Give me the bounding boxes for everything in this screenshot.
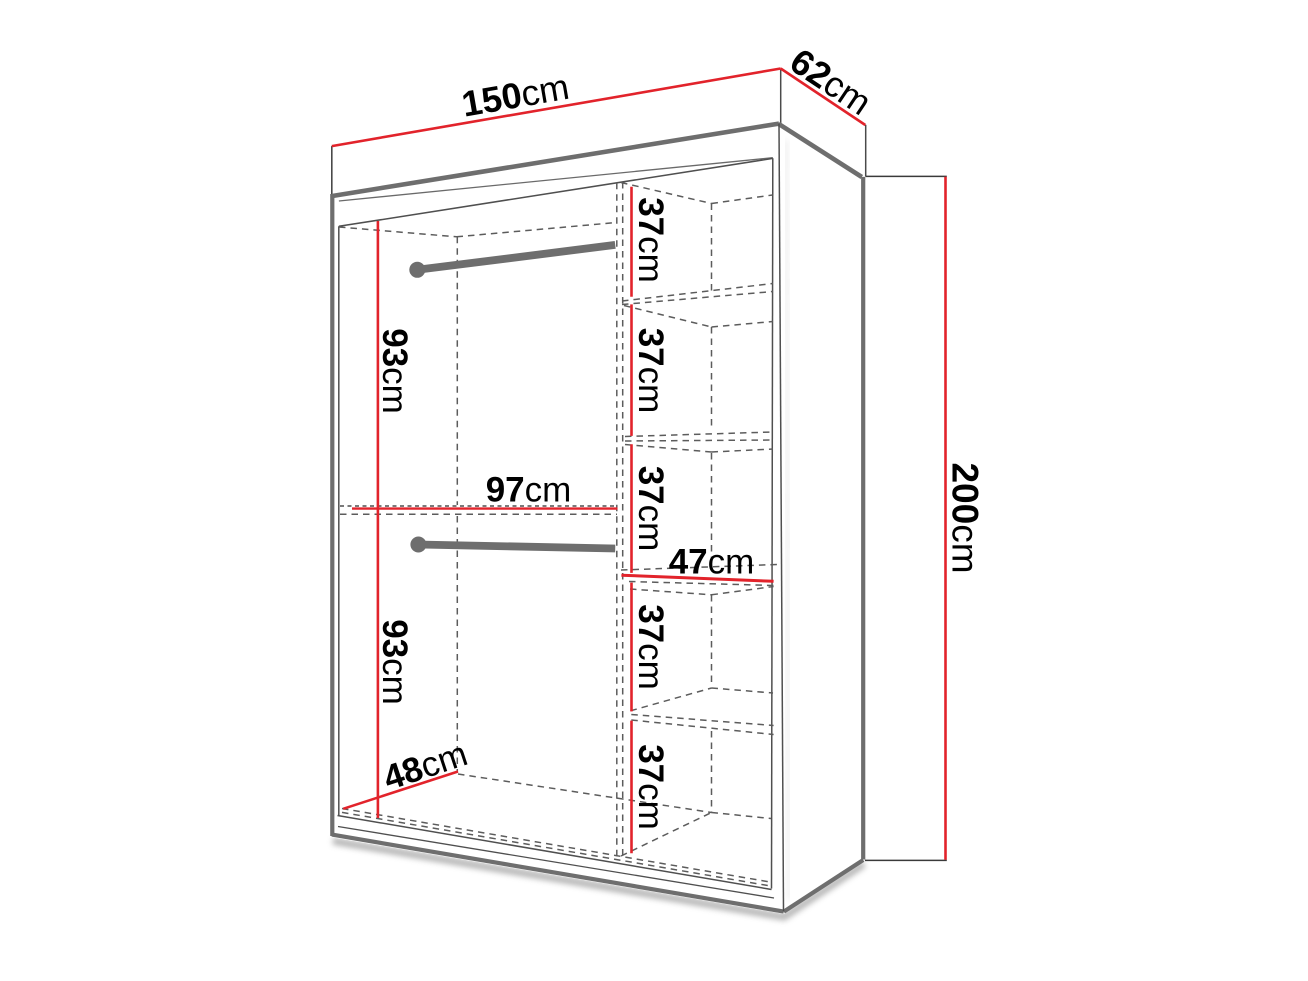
svg-text:37cm: 37cm: [631, 466, 670, 552]
svg-text:47cm: 47cm: [669, 543, 755, 582]
svg-text:37cm: 37cm: [631, 604, 670, 690]
svg-text:37cm: 37cm: [631, 744, 670, 830]
svg-text:37cm: 37cm: [631, 197, 670, 283]
svg-text:93cm: 93cm: [375, 619, 414, 705]
svg-text:37cm: 37cm: [631, 328, 670, 414]
svg-text:93cm: 93cm: [375, 328, 414, 414]
svg-text:97cm: 97cm: [486, 470, 572, 509]
svg-text:200cm: 200cm: [945, 462, 986, 573]
